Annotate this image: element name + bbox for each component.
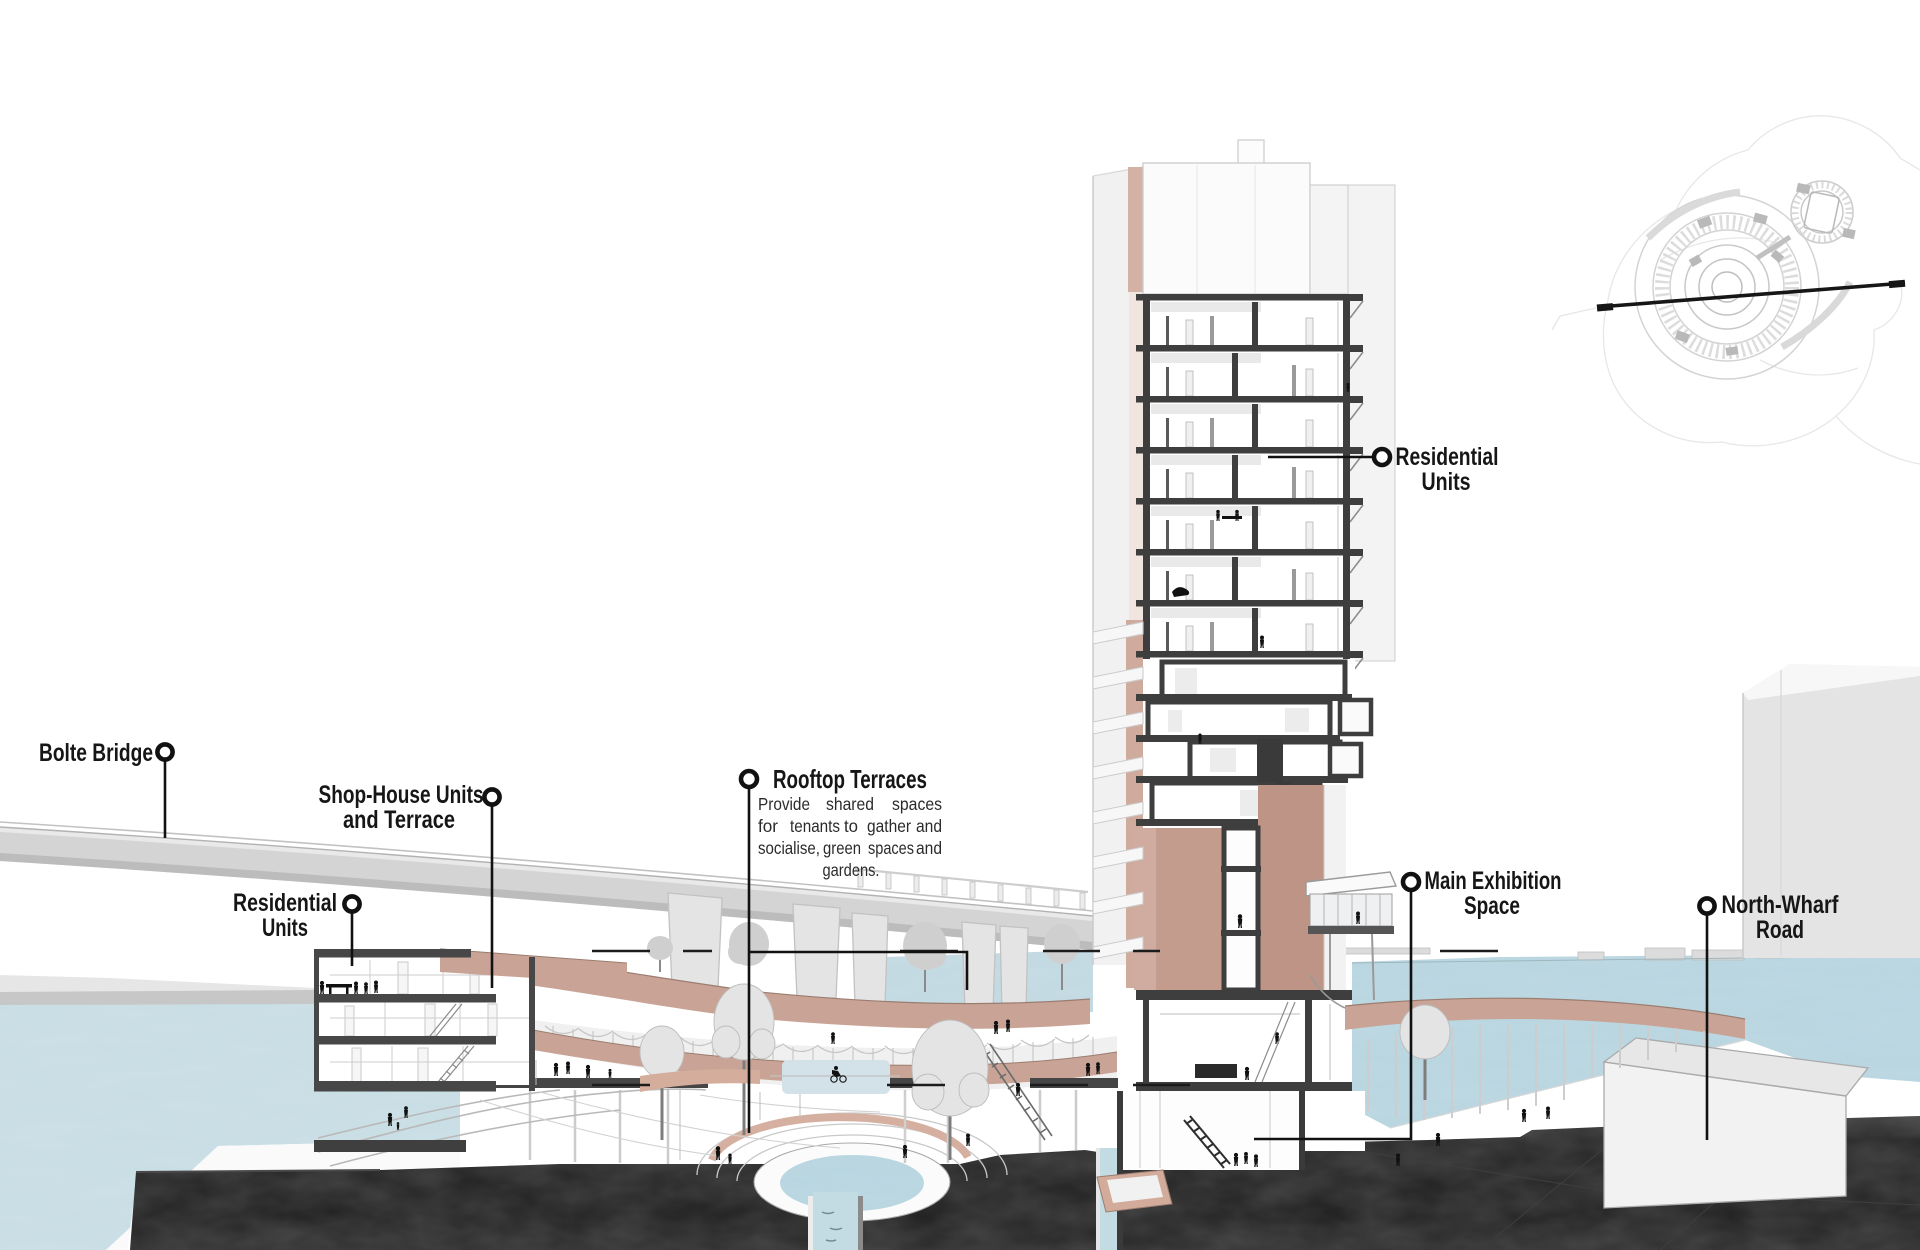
- svg-text:and: and: [916, 838, 942, 858]
- svg-text:Road: Road: [1756, 916, 1804, 944]
- svg-text:North-Wharf: North-Wharf: [1722, 891, 1840, 919]
- svg-text:Shop-House Units: Shop-House Units: [319, 781, 484, 809]
- svg-text:to: to: [844, 816, 858, 836]
- svg-text:for: for: [758, 816, 778, 836]
- svg-text:and Terrace: and Terrace: [343, 806, 455, 834]
- svg-text:Units: Units: [1422, 468, 1471, 496]
- svg-text:tenants: tenants: [790, 816, 840, 836]
- svg-text:Units: Units: [262, 914, 308, 942]
- svg-text:gather: gather: [867, 816, 911, 836]
- svg-text:shared: shared: [826, 794, 874, 814]
- svg-text:Residential: Residential: [1396, 443, 1499, 471]
- svg-text:green: green: [823, 838, 861, 858]
- svg-text:Main Exhibition: Main Exhibition: [1425, 867, 1562, 895]
- svg-text:Rooftop Terraces: Rooftop Terraces: [773, 764, 927, 794]
- svg-text:Bolte Bridge: Bolte Bridge: [39, 739, 153, 767]
- svg-text:Residential: Residential: [233, 889, 337, 917]
- svg-text:spaces: spaces: [892, 794, 942, 814]
- svg-text:Space: Space: [1464, 892, 1520, 920]
- svg-text:socialise,: socialise,: [758, 838, 820, 858]
- svg-text:gardens.: gardens.: [823, 860, 880, 880]
- svg-text:and: and: [916, 816, 942, 836]
- svg-text:Provide: Provide: [758, 794, 810, 814]
- svg-text:spaces: spaces: [868, 838, 914, 858]
